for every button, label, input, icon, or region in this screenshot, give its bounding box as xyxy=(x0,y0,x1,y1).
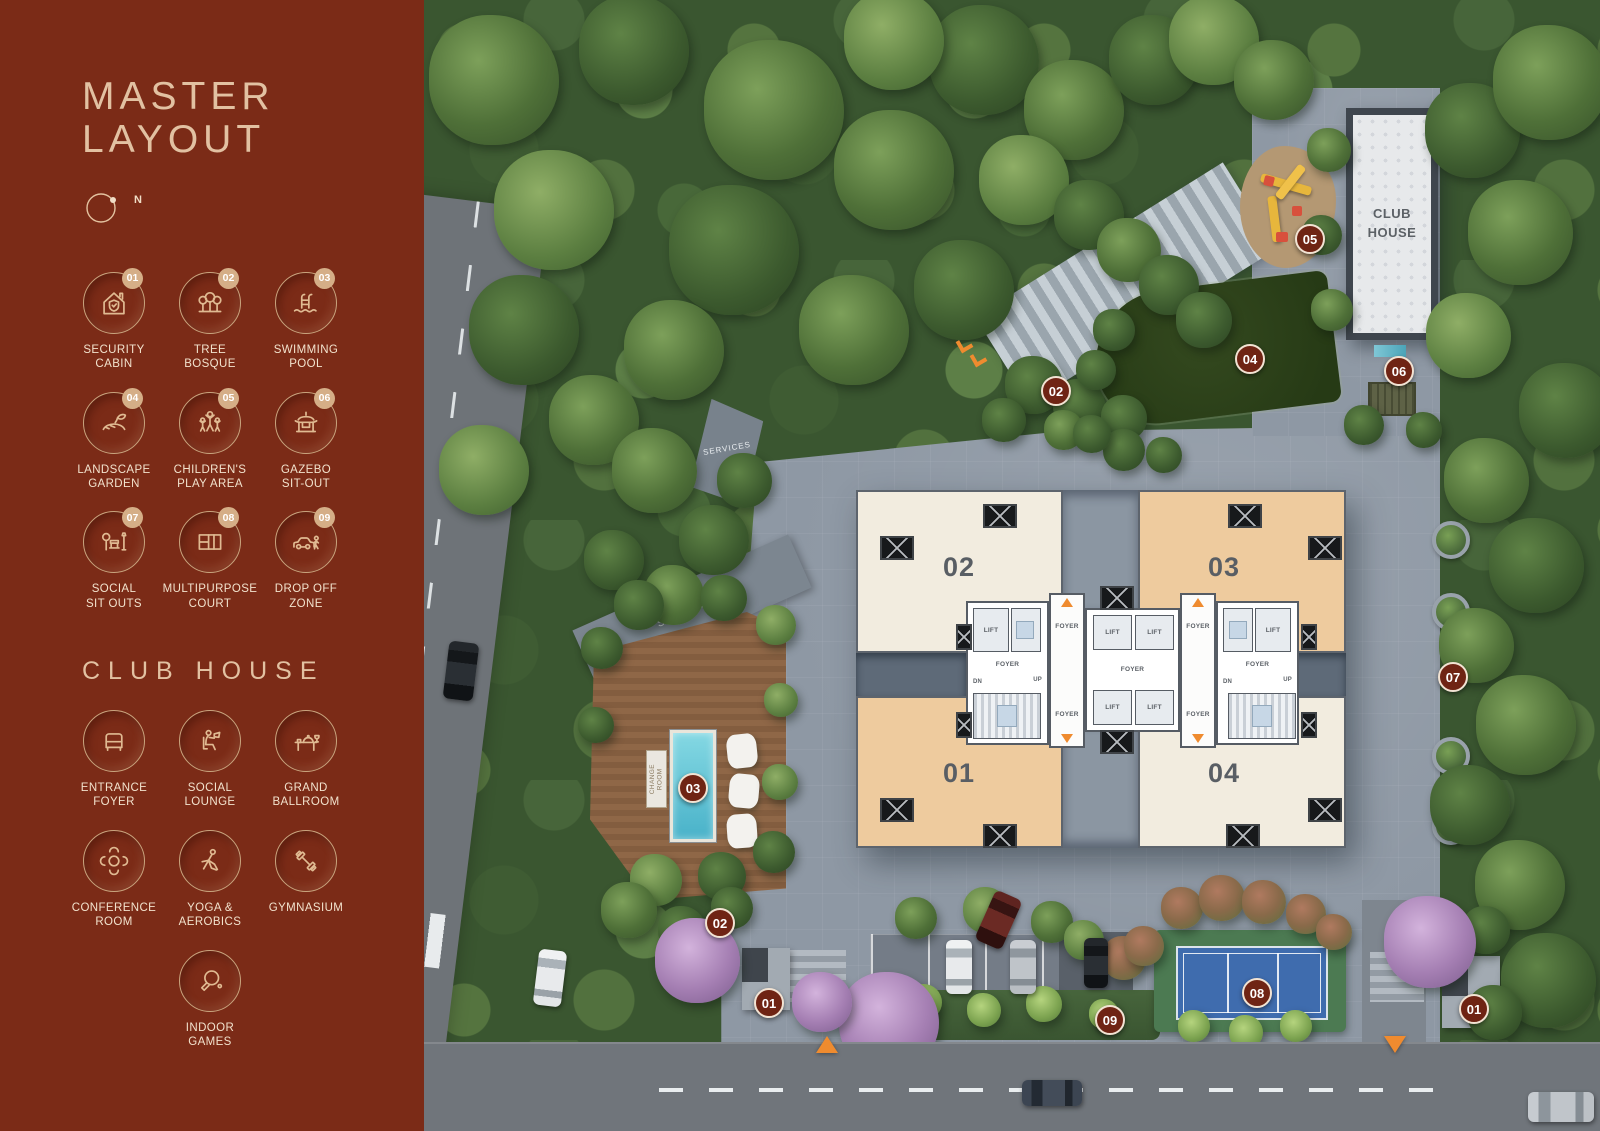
legend-item-social-sit-outs: 07 SOCIAL SIT OUTS xyxy=(66,511,162,611)
conference-room-icon xyxy=(83,830,145,892)
tree xyxy=(624,300,724,400)
multipurpose-court-icon: 08 xyxy=(179,511,241,573)
legend-item-tree-bosque: 02 TREE BOSQUE xyxy=(162,272,258,372)
car xyxy=(1084,938,1108,988)
tree xyxy=(1344,405,1384,445)
legend-number-badge: 07 xyxy=(122,507,143,528)
legend-number-badge: 03 xyxy=(314,268,335,289)
tree xyxy=(1146,437,1182,473)
tree xyxy=(679,505,749,575)
tree xyxy=(1307,128,1351,172)
car xyxy=(946,940,972,994)
tree xyxy=(1316,914,1352,950)
tree xyxy=(1199,875,1245,921)
tree xyxy=(704,40,844,180)
entrance-foyer-icon xyxy=(83,710,145,772)
club-item-label: GRAND BALLROOM xyxy=(258,781,354,810)
tree xyxy=(579,0,689,105)
club-item-conference-room: CONFERENCE ROOM xyxy=(66,830,162,930)
compass-north-indicator: N xyxy=(84,188,424,224)
tree xyxy=(914,240,1014,340)
legend-item-label: LANDSCAPE GARDEN xyxy=(66,463,162,492)
social-sit-outs-icon: 07 xyxy=(83,511,145,573)
tree xyxy=(1311,289,1353,331)
tree xyxy=(844,0,944,90)
tree xyxy=(1124,926,1164,966)
tree xyxy=(1093,309,1135,351)
club-item-yoga-aerobics: YOGA & AEROBICS xyxy=(162,830,258,930)
tree xyxy=(895,897,937,939)
tree xyxy=(439,425,529,515)
legend-number-badge: 04 xyxy=(122,388,143,409)
entrance-arrow-icon xyxy=(1384,1036,1406,1053)
tree xyxy=(1242,880,1286,924)
indoor-games-icon xyxy=(179,950,241,1012)
club-item-label: INDOOR GAMES xyxy=(162,1021,258,1050)
club-item-grand-ballroom: GRAND BALLROOM xyxy=(258,710,354,810)
tree xyxy=(701,575,747,621)
map-marker-06-gazebo: 06 xyxy=(1384,356,1414,386)
tree xyxy=(799,275,909,385)
club-house-heading: CLUB HOUSE xyxy=(82,657,424,686)
legend-item-landscape-garden: 04 LANDSCAPE GARDEN xyxy=(66,392,162,492)
club-item-gymnasium: GYMNASIUM xyxy=(258,830,354,930)
car xyxy=(1528,1092,1594,1122)
tree xyxy=(1280,1010,1312,1042)
club-item-label: YOGA & AEROBICS xyxy=(162,901,258,930)
tree xyxy=(614,580,664,630)
legend-item-drop-off-zone: 09 DROP OFF ZONE xyxy=(258,511,354,611)
tree xyxy=(669,185,799,315)
map-marker-01-security-cabin-west: 01 xyxy=(754,988,784,1018)
tree xyxy=(1493,25,1600,140)
tree xyxy=(429,15,559,145)
tree-bosque-icon: 02 xyxy=(179,272,241,334)
planter xyxy=(1432,521,1470,559)
legend-grid: 01 SECURITY CABIN 02 TREE BOSQUE 03 SWIM… xyxy=(66,272,424,611)
tree xyxy=(1234,40,1314,120)
tree xyxy=(1468,180,1573,285)
legend-item-label: MULTIPURPOSE COURT xyxy=(162,582,258,611)
grand-ballroom-icon xyxy=(275,710,337,772)
tree xyxy=(578,707,614,743)
tree xyxy=(1489,518,1584,613)
tree xyxy=(1426,293,1511,378)
tree xyxy=(1384,896,1476,988)
club-item-indoor-games: INDOOR GAMES xyxy=(162,950,258,1050)
map-marker-01-security-cabin-east: 01 xyxy=(1459,994,1489,1024)
tree xyxy=(762,764,798,800)
map-marker-09-drop-off: 09 xyxy=(1095,1005,1125,1035)
childrens-play-area-icon: 05 xyxy=(179,392,241,454)
tree xyxy=(1161,887,1203,929)
legend-number-badge: 06 xyxy=(314,388,335,409)
entrance-arrow-icon xyxy=(816,1036,838,1053)
legend-item-label: SECURITY CABIN xyxy=(66,343,162,372)
tree xyxy=(1430,765,1510,845)
road-south xyxy=(424,1042,1600,1131)
legend-item-label: SWIMMING POOL xyxy=(258,343,354,372)
legend-number-badge: 01 xyxy=(122,268,143,289)
map-marker-02-tree-bosque-south: 02 xyxy=(705,908,735,938)
tree xyxy=(581,627,623,669)
club-item-label: SOCIAL LOUNGE xyxy=(162,781,258,810)
legend-item-multipurpose-court: 08 MULTIPURPOSE COURT xyxy=(162,511,258,611)
tree xyxy=(753,831,795,873)
tree xyxy=(601,882,657,938)
legend-number-badge: 05 xyxy=(218,388,239,409)
gymnasium-icon xyxy=(275,830,337,892)
drop-off-zone-icon: 09 xyxy=(275,511,337,573)
map-marker-08-court: 08 xyxy=(1242,978,1272,1008)
map-marker-05-play-area: 05 xyxy=(1295,224,1325,254)
tree xyxy=(494,150,614,270)
tree xyxy=(1178,1010,1210,1042)
tree xyxy=(834,110,954,230)
legend-item-label: TREE BOSQUE xyxy=(162,343,258,372)
tree xyxy=(1073,415,1111,453)
master-layout-page: MASTER LAYOUT N 01 SECURITY CABIN 02 xyxy=(0,0,1600,1131)
car xyxy=(1010,940,1036,994)
club-item-label: GYMNASIUM xyxy=(258,901,354,915)
tree xyxy=(1406,412,1442,448)
legend-number-badge: 02 xyxy=(218,268,239,289)
tree xyxy=(612,428,697,513)
map-marker-07-social-sit-outs: 07 xyxy=(1438,662,1468,692)
legend-number-badge: 08 xyxy=(218,507,239,528)
landscape-garden-icon: 04 xyxy=(83,392,145,454)
legend-item-swimming-pool: 03 SWIMMING POOL xyxy=(258,272,354,372)
legend-item-label: GAZEBO SIT-OUT xyxy=(258,463,354,492)
tree xyxy=(717,453,772,508)
car xyxy=(1022,1080,1082,1106)
map-marker-03-swimming-pool: 03 xyxy=(678,773,708,803)
legend-number-badge: 09 xyxy=(314,507,335,528)
tree xyxy=(792,972,852,1032)
legend-item-label: CHILDREN'S PLAY AREA xyxy=(162,463,258,492)
gazebo-sit-out-icon: 06 xyxy=(275,392,337,454)
yoga-aerobics-icon xyxy=(179,830,241,892)
tree xyxy=(967,993,1001,1027)
compass-n-label: N xyxy=(134,194,142,206)
tree xyxy=(1476,675,1576,775)
club-item-entrance-foyer: ENTRANCE FOYER xyxy=(66,710,162,810)
swimming-pool-icon: 03 xyxy=(275,272,337,334)
tree xyxy=(1444,438,1529,523)
tree xyxy=(1176,292,1232,348)
legend-item-label: DROP OFF ZONE xyxy=(258,582,354,611)
map-marker-02-tree-bosque: 02 xyxy=(1041,376,1071,406)
legend-item-childrens-play-area: 05 CHILDREN'S PLAY AREA xyxy=(162,392,258,492)
tree xyxy=(756,605,796,645)
tree xyxy=(1076,350,1116,390)
security-cabin-icon: 01 xyxy=(83,272,145,334)
page-title: MASTER LAYOUT xyxy=(82,76,424,162)
club-item-social-lounge: SOCIAL LOUNGE xyxy=(162,710,258,810)
tree xyxy=(764,683,798,717)
tree xyxy=(982,398,1026,442)
site-plan-aerial: CLUB HOUSE SERVICES SERVICES CHANGE ROOM xyxy=(424,0,1600,1131)
map-marker-04-landscape-garden: 04 xyxy=(1235,344,1265,374)
tree xyxy=(469,275,579,385)
club-item-label: ENTRANCE FOYER xyxy=(66,781,162,810)
compass-icon xyxy=(84,188,130,224)
sidebar: MASTER LAYOUT N 01 SECURITY CABIN 02 xyxy=(0,0,424,1131)
tree xyxy=(929,5,1039,115)
legend-item-label: SOCIAL SIT OUTS xyxy=(66,582,162,611)
legend-item-security-cabin: 01 SECURITY CABIN xyxy=(66,272,162,372)
tree xyxy=(1519,363,1600,458)
legend-item-gazebo-sit-out: 06 GAZEBO SIT-OUT xyxy=(258,392,354,492)
social-lounge-icon xyxy=(179,710,241,772)
club-item-label: CONFERENCE ROOM xyxy=(66,901,162,930)
club-house-grid: ENTRANCE FOYER SOCIAL LOUNGE GRAND BALLR… xyxy=(66,710,424,1049)
